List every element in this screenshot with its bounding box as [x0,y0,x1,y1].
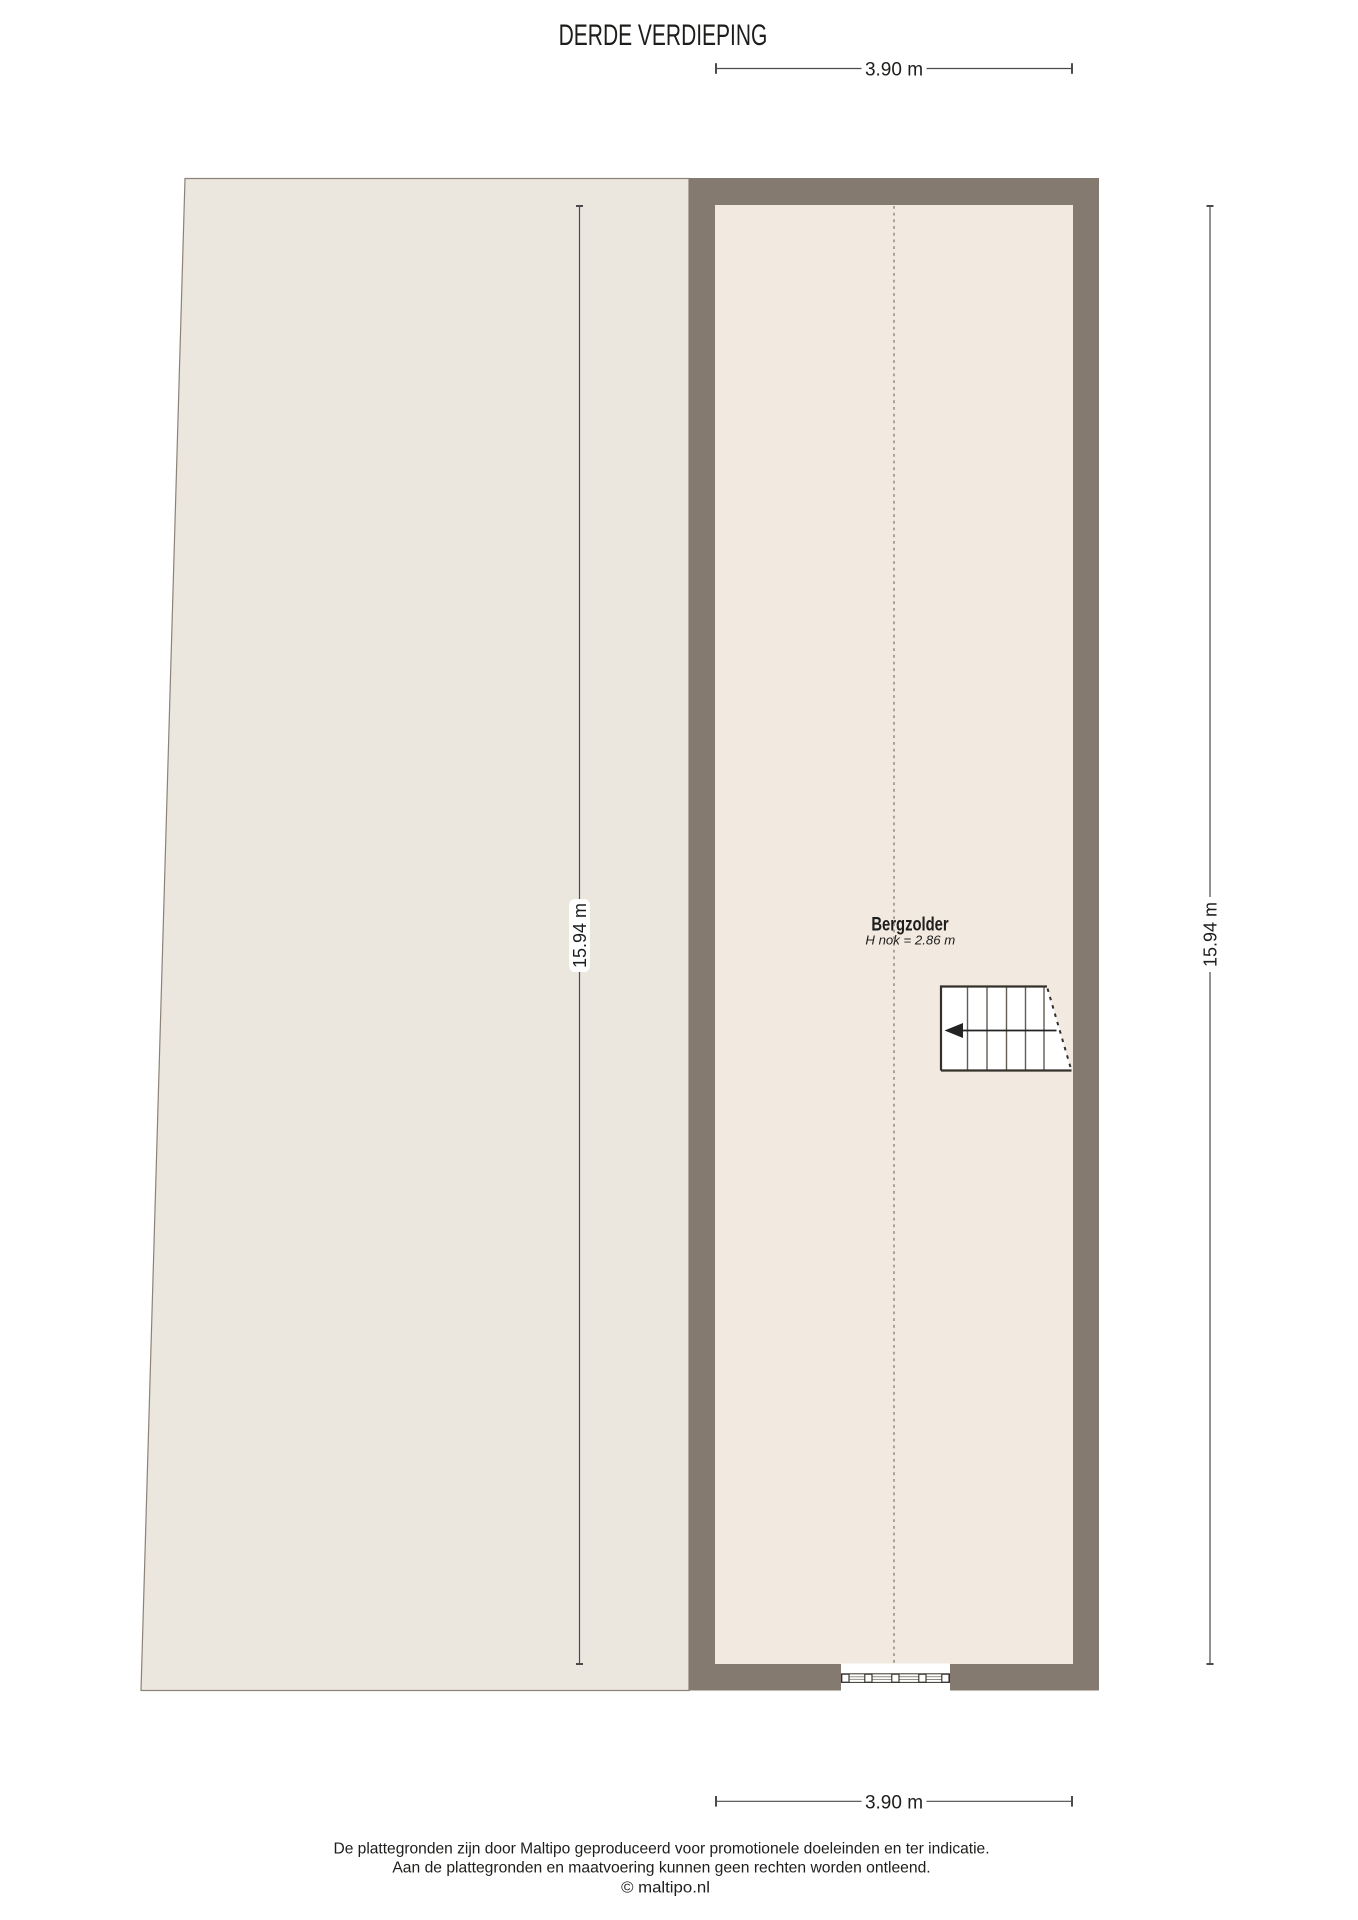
svg-text:3.90 m: 3.90 m [865,1792,923,1813]
svg-text:3.90 m: 3.90 m [865,60,923,81]
svg-text:Bergzolder: Bergzolder [871,914,949,935]
svg-text:H nok = 2.86 m: H nok = 2.86 m [865,933,955,948]
svg-text:DERDE VERDIEPING: DERDE VERDIEPING [559,20,768,52]
svg-text:© maltipo.nl: © maltipo.nl [621,1879,710,1897]
svg-text:De plattegronden zijn door Mal: De plattegronden zijn door Maltipo gepro… [333,1840,989,1857]
svg-text:15.94 m: 15.94 m [1200,902,1220,967]
svg-text:Aan de plattegronden en maatvo: Aan de plattegronden en maatvoering kunn… [392,1859,930,1876]
svg-text:15.94 m: 15.94 m [570,903,590,968]
